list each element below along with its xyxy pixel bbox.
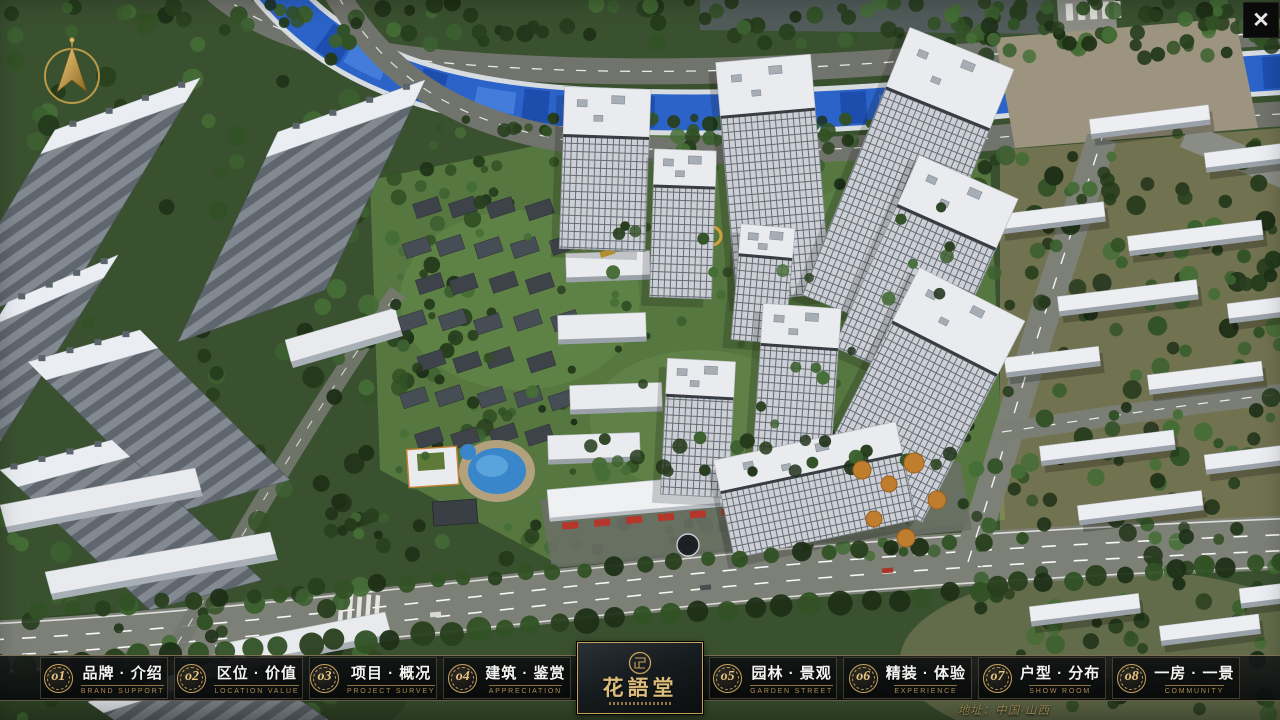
- compass-icon[interactable]: [36, 30, 108, 114]
- nav-label-zh: 精装 · 体验: [886, 662, 966, 683]
- logo-subtitle-rule: [609, 702, 671, 705]
- nav-label-en: GARDEN STREET: [750, 685, 833, 695]
- site-map-viewport[interactable]: [0, 0, 1280, 720]
- close-button[interactable]: ✕: [1243, 2, 1279, 38]
- nav-item-architecture[interactable]: o4 建筑 · 鉴赏 APPRECIATION: [443, 657, 571, 699]
- nav-number-badge: o2: [177, 664, 206, 693]
- nav-number-badge: o3: [310, 664, 339, 693]
- nav-label-zh: 一房 · 一景: [1154, 662, 1234, 683]
- nav-item-garden-landscape[interactable]: o5 园林 · 景观 GARDEN STREET: [709, 657, 837, 699]
- nav-label-en: PROJECT SURVEY: [347, 685, 435, 695]
- seal-emblem-icon: [628, 651, 652, 675]
- nav-number-badge: o4: [448, 664, 477, 693]
- nav-number-badge: o7: [983, 664, 1012, 693]
- nav-label-en: BRAND SUPPORT: [81, 685, 165, 695]
- nav-number-badge: o6: [849, 664, 878, 693]
- project-logo-title: 花語堂: [603, 677, 678, 698]
- nav-label-en: EXPERIENCE: [894, 685, 957, 695]
- swimming-pool: [459, 440, 535, 502]
- nav-number-badge: o8: [1117, 664, 1146, 693]
- nav-item-room-view[interactable]: o8 一房 · 一景 COMMUNITY: [1112, 657, 1240, 699]
- nav-label-zh: 品牌 · 介绍: [82, 662, 162, 683]
- nav-label-zh: 区位 · 价值: [217, 662, 297, 683]
- nav-label-zh: 户型 · 分布: [1020, 662, 1100, 683]
- bottom-navbar: o1 品牌 · 介绍 BRAND SUPPORT o2 区位 · 价值 LOCA…: [0, 655, 1280, 701]
- nav-label-en: COMMUNITY: [1165, 685, 1224, 695]
- close-icon: ✕: [1252, 10, 1270, 31]
- nav-item-location-value[interactable]: o2 区位 · 价值 LOCATION VALUE: [174, 657, 302, 699]
- nav-label-zh: 建筑 · 鉴赏: [485, 662, 565, 683]
- nav-item-interior-experience[interactable]: o6 精装 · 体验 EXPERIENCE: [843, 657, 971, 699]
- nav-label-zh: 项目 · 概况: [351, 662, 431, 683]
- project-address: 地址：中国·山西: [958, 702, 1050, 718]
- nav-number-badge: o1: [44, 664, 73, 693]
- project-logo-panel[interactable]: 花語堂: [577, 642, 703, 714]
- nav-label-en: APPRECIATION: [489, 685, 562, 695]
- nav-label-en: LOCATION VALUE: [214, 685, 299, 695]
- sales-presentation-app: ✕ o1 品牌 · 介绍 BRAND SUPPORT o2 区位 · 价值 LO…: [0, 0, 1280, 720]
- nav-item-brand-intro[interactable]: o1 品牌 · 介绍 BRAND SUPPORT: [40, 657, 168, 699]
- nav-label-en: SHOW ROOM: [1029, 685, 1091, 695]
- nav-item-floorplan-distribution[interactable]: o7 户型 · 分布 SHOW ROOM: [978, 657, 1106, 699]
- nav-item-project-overview[interactable]: o3 项目 · 概况 PROJECT SURVEY: [309, 657, 437, 699]
- nav-number-badge: o5: [713, 664, 742, 693]
- nav-label-zh: 园林 · 景观: [751, 662, 831, 683]
